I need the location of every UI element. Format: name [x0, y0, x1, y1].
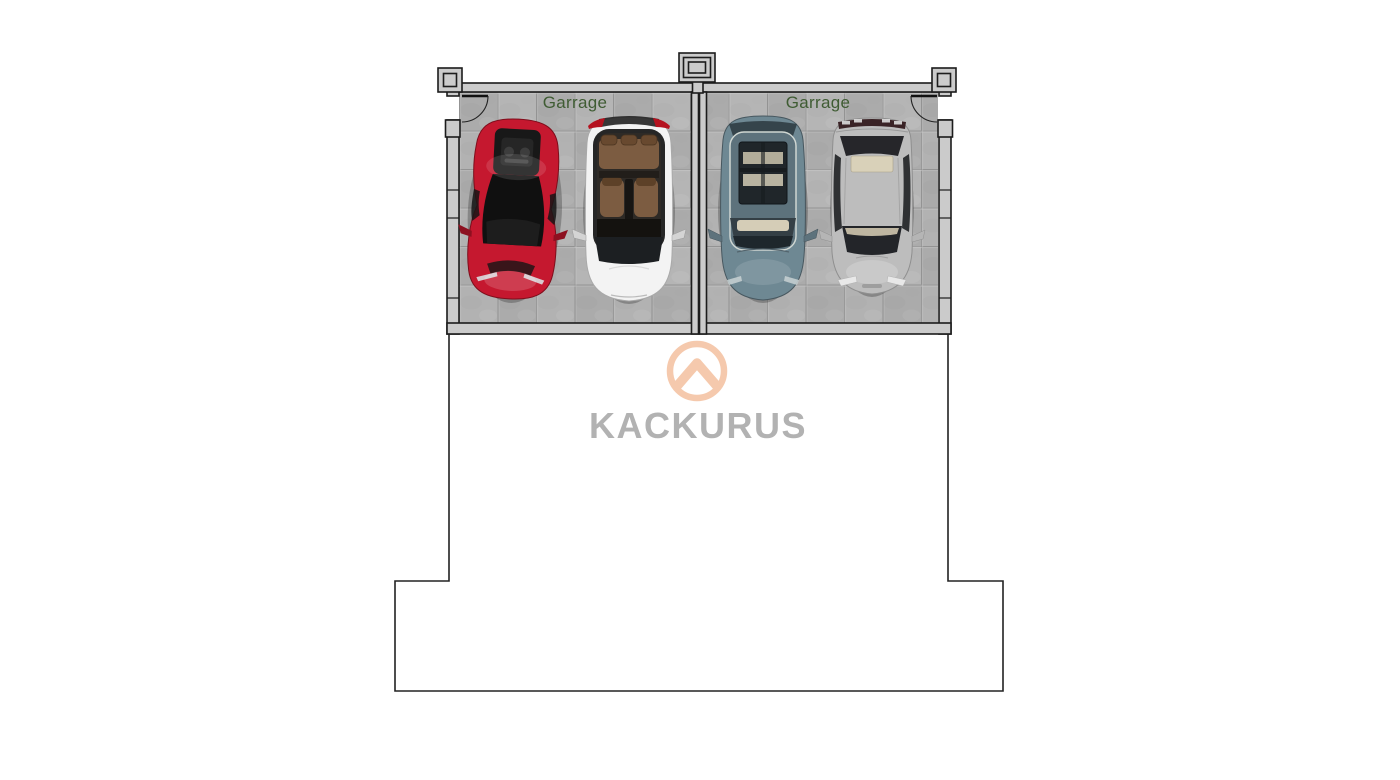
lower-floor-outline: [395, 334, 1003, 691]
floor-plan-image: Garrage Garrage KACKURUS: [0, 0, 1400, 780]
left-door-jamb: [446, 120, 461, 137]
left-garage-label: Garrage: [543, 93, 607, 113]
kackurus-logo-icon: [670, 344, 724, 398]
white-car-open-roof: [572, 116, 686, 304]
left-wall: [447, 120, 459, 334]
floor-plan-drawing: [0, 0, 1400, 780]
logo-chevron: [678, 363, 716, 385]
right-garage-label: Garrage: [786, 93, 850, 113]
right-wall: [939, 120, 951, 334]
party-wall-left-leaf: [692, 92, 699, 334]
right-door-jamb: [938, 120, 953, 137]
kackurus-brand-text: KACKURUS: [589, 405, 807, 447]
logo-circle: [670, 344, 724, 398]
party-wall-right-leaf: [700, 92, 707, 334]
